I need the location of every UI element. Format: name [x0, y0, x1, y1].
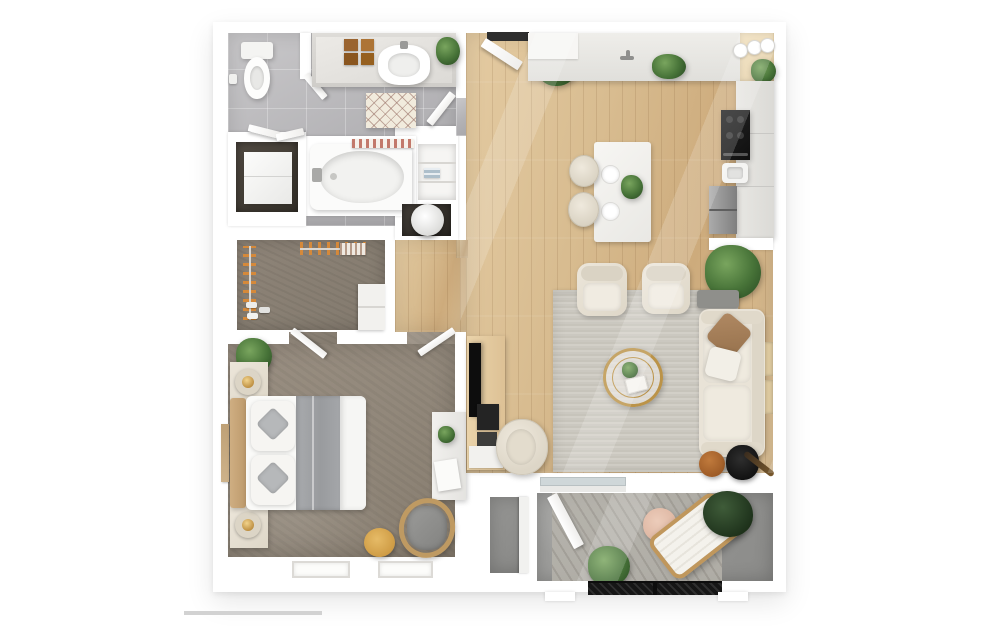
hall-passage: [456, 240, 468, 258]
sofa-cushion-bottom: [703, 385, 751, 441]
toilet-bowl-inner: [250, 66, 264, 90]
bed-duvet-edge: [340, 396, 366, 510]
bathroom-faucet: [400, 41, 408, 49]
bathroom-sink-basin: [388, 53, 420, 77]
kitchen-faucet-spout: [626, 50, 630, 60]
bathtub-drain: [330, 173, 337, 180]
bed-runner-fold: [312, 396, 314, 510]
desk-papers: [434, 458, 461, 491]
wood-organizer-3: [361, 39, 374, 51]
coffee-table-plant: [622, 362, 638, 378]
island-plant: [621, 175, 643, 199]
island-plate-1: [601, 165, 620, 184]
armchair-right-back: [646, 266, 686, 281]
bar-stool-1: [569, 155, 599, 187]
bathtub-faucet: [312, 168, 322, 182]
closet-shelf-line: [358, 306, 385, 308]
linen-shelf-line-1: [418, 162, 456, 164]
linen-towels: [424, 168, 440, 178]
bathroom-door-opening: [456, 98, 466, 136]
range-handle: [723, 153, 748, 156]
wood-organizer-2: [344, 53, 358, 65]
wood-organizer-4: [361, 53, 374, 65]
wood-organizer-1: [344, 39, 358, 51]
bath-mat: [366, 93, 416, 128]
nightstand-bottom-lamp: [242, 519, 254, 531]
bedroom-window-left: [292, 561, 350, 578]
balcony-railing-post: [653, 581, 657, 595]
toilet-nook-wall: [300, 33, 311, 79]
swivel-chair-cushion: [506, 429, 536, 465]
kitchen-sink-basin: [727, 167, 743, 179]
nightstand-top-lamp: [242, 376, 254, 388]
sofa-back: [752, 313, 764, 453]
shower-curtain: [352, 139, 414, 148]
bedroom-window-right: [378, 561, 433, 578]
bed-headboard: [230, 398, 246, 508]
counter-plant: [652, 54, 686, 79]
vanity-plant: [436, 37, 460, 65]
storage-door-panel: [519, 497, 529, 573]
floorplan-scene: [0, 0, 998, 626]
bar-stool-2: [568, 192, 599, 227]
closet-shoes-2: [259, 307, 270, 313]
washer-seam: [244, 176, 292, 177]
patio-door-glass: [540, 477, 626, 486]
decor-plate-3: [760, 38, 775, 53]
desk-plant: [438, 426, 455, 443]
range-burner-2: [737, 116, 744, 123]
corner-plant: [751, 59, 776, 83]
water-heater: [411, 204, 444, 236]
window-trim-2: [765, 380, 773, 414]
living-plant-pot: [697, 290, 739, 308]
balcony-step-right: [718, 592, 748, 601]
patio-door-threshold: [540, 486, 626, 492]
entry-door-opening: [487, 32, 529, 41]
toilet-paper-holder: [229, 74, 237, 84]
linen-shelf-line-2: [418, 181, 456, 183]
decor-plate-1: [733, 43, 748, 58]
scale-bar: [184, 611, 322, 615]
balcony-step-left: [545, 592, 575, 601]
armchair-left-back: [581, 266, 623, 281]
closet-shoes-1: [246, 302, 257, 308]
closet-shoes-3: [247, 313, 258, 319]
side-table: [699, 451, 725, 477]
balcony-plant-green: [588, 546, 630, 586]
armchair-left-seat: [583, 283, 621, 311]
refrigerator-seam: [709, 209, 737, 211]
closet-clothes: [340, 243, 366, 255]
bedroom-chair-cushion: [407, 506, 447, 550]
wall-art: [221, 424, 229, 482]
island-plate-2: [601, 202, 620, 221]
bedroom-stool: [364, 528, 395, 557]
armchair-right-seat: [648, 283, 684, 309]
washer-unit: [244, 152, 292, 204]
window-trim-1: [765, 342, 773, 376]
kitchen-upper-cabinet: [528, 33, 578, 59]
closet-rail-left-rod: [249, 246, 251, 320]
cabinet-divider-2: [736, 186, 774, 187]
av-equipment: [477, 404, 499, 430]
range-burner-1: [726, 116, 733, 123]
range-burner-4: [737, 132, 744, 139]
balcony-plant-dark: [703, 491, 753, 537]
bed-runner: [296, 396, 340, 510]
range-burner-3: [726, 132, 733, 139]
